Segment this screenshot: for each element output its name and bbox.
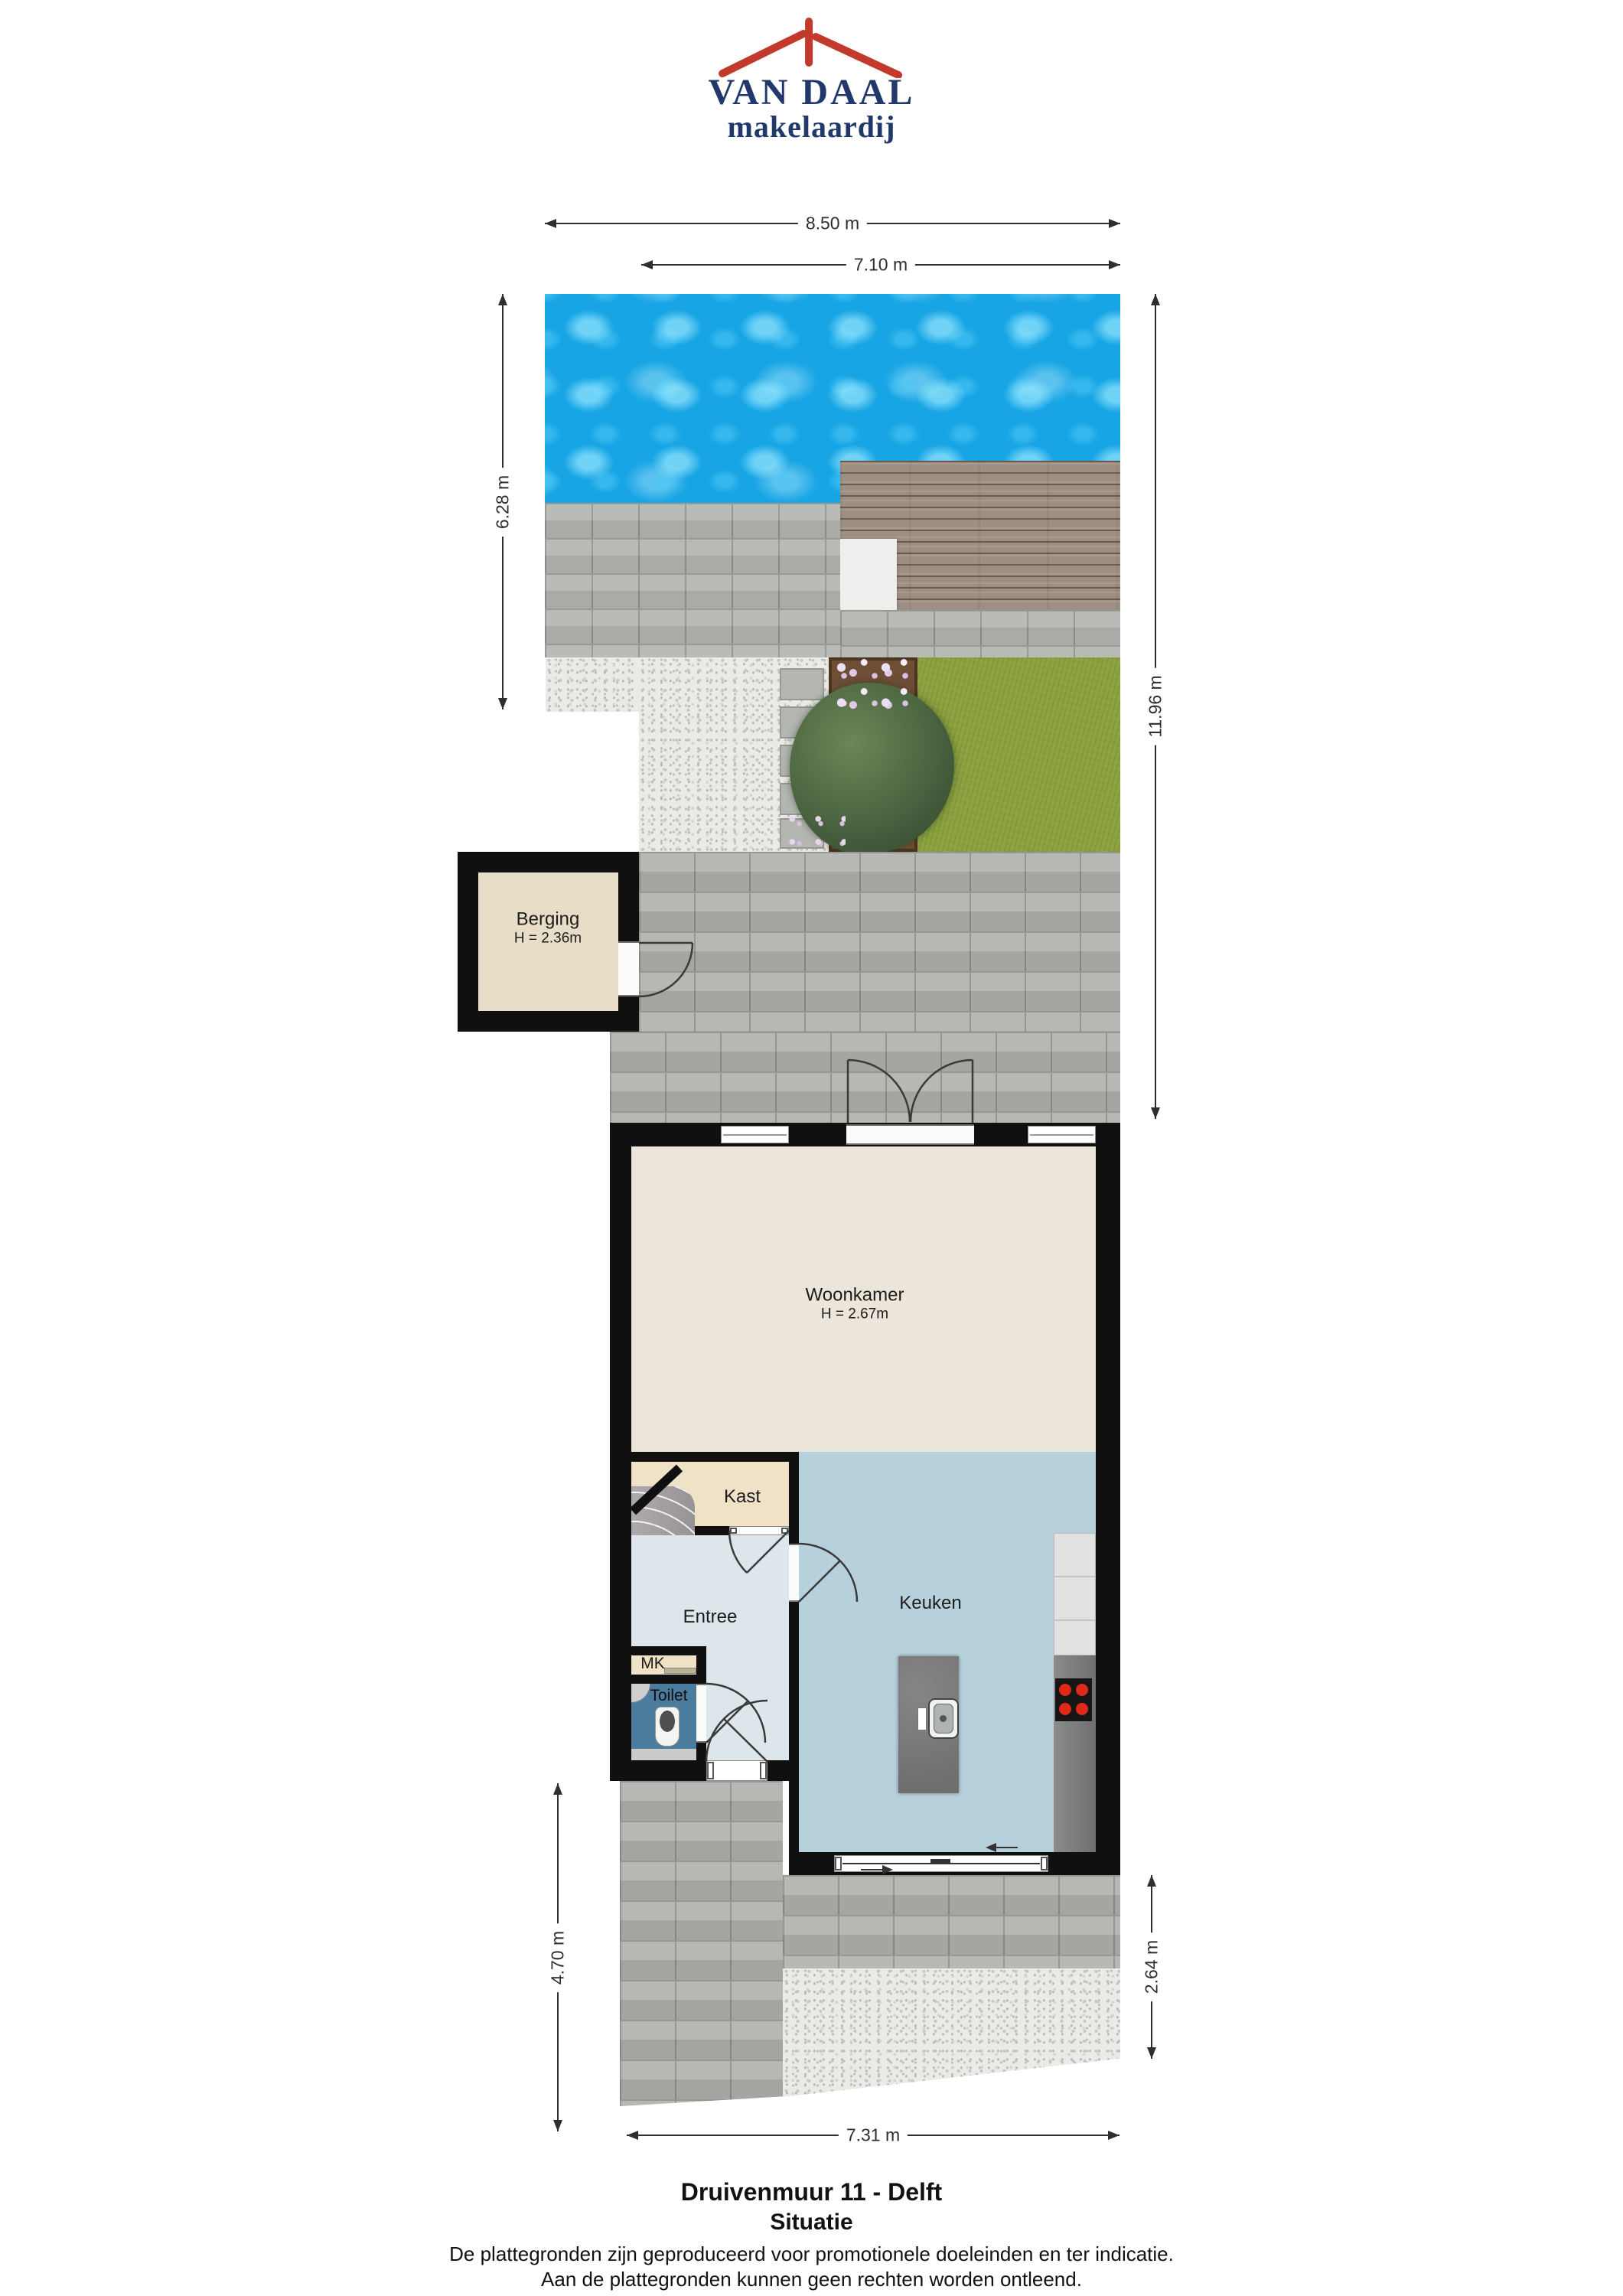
door-swing-overlay bbox=[0, 0, 1623, 2296]
property-address: Druivenmuur 11 - Delft bbox=[0, 2178, 1623, 2206]
dimension-top-inner-value: 7.10 m bbox=[846, 254, 915, 276]
dimension-front-right: 2.64 m bbox=[1142, 1875, 1162, 2059]
stair-diagonal-wall bbox=[633, 1468, 680, 1512]
dimension-front-left-value: 4.70 m bbox=[547, 1923, 569, 1991]
disclaimer-line-1: De plattegronden zijn geproduceerd voor … bbox=[0, 2242, 1623, 2267]
dimension-top-outer-value: 8.50 m bbox=[798, 213, 867, 235]
dimension-top-inner: 7.10 m bbox=[641, 255, 1120, 275]
dimension-front-left: 4.70 m bbox=[548, 1783, 568, 2131]
dimension-garden-right-value: 11.96 m bbox=[1145, 667, 1167, 745]
dimension-garden-right: 11.96 m bbox=[1146, 294, 1165, 1119]
floor-plan: Berging H = 2.36m Woonkamer H = 2.67m Ke… bbox=[0, 0, 1623, 2296]
dimension-garden-left: 6.28 m bbox=[493, 294, 513, 709]
disclaimer-line-2: Aan de plattegronden kunnen geen rechten… bbox=[0, 2267, 1623, 2292]
dimension-bottom-value: 7.31 m bbox=[839, 2125, 908, 2147]
dimension-top-outer: 8.50 m bbox=[545, 214, 1120, 233]
footer: Druivenmuur 11 - Delft Situatie De platt… bbox=[0, 2178, 1623, 2291]
page: VAN DAAL makelaardij bbox=[0, 0, 1623, 2296]
dimension-garden-left-value: 6.28 m bbox=[492, 467, 514, 536]
plan-title: Situatie bbox=[0, 2210, 1623, 2236]
dimension-front-right-value: 2.64 m bbox=[1141, 1932, 1163, 2001]
dimension-bottom: 7.31 m bbox=[627, 2125, 1119, 2145]
